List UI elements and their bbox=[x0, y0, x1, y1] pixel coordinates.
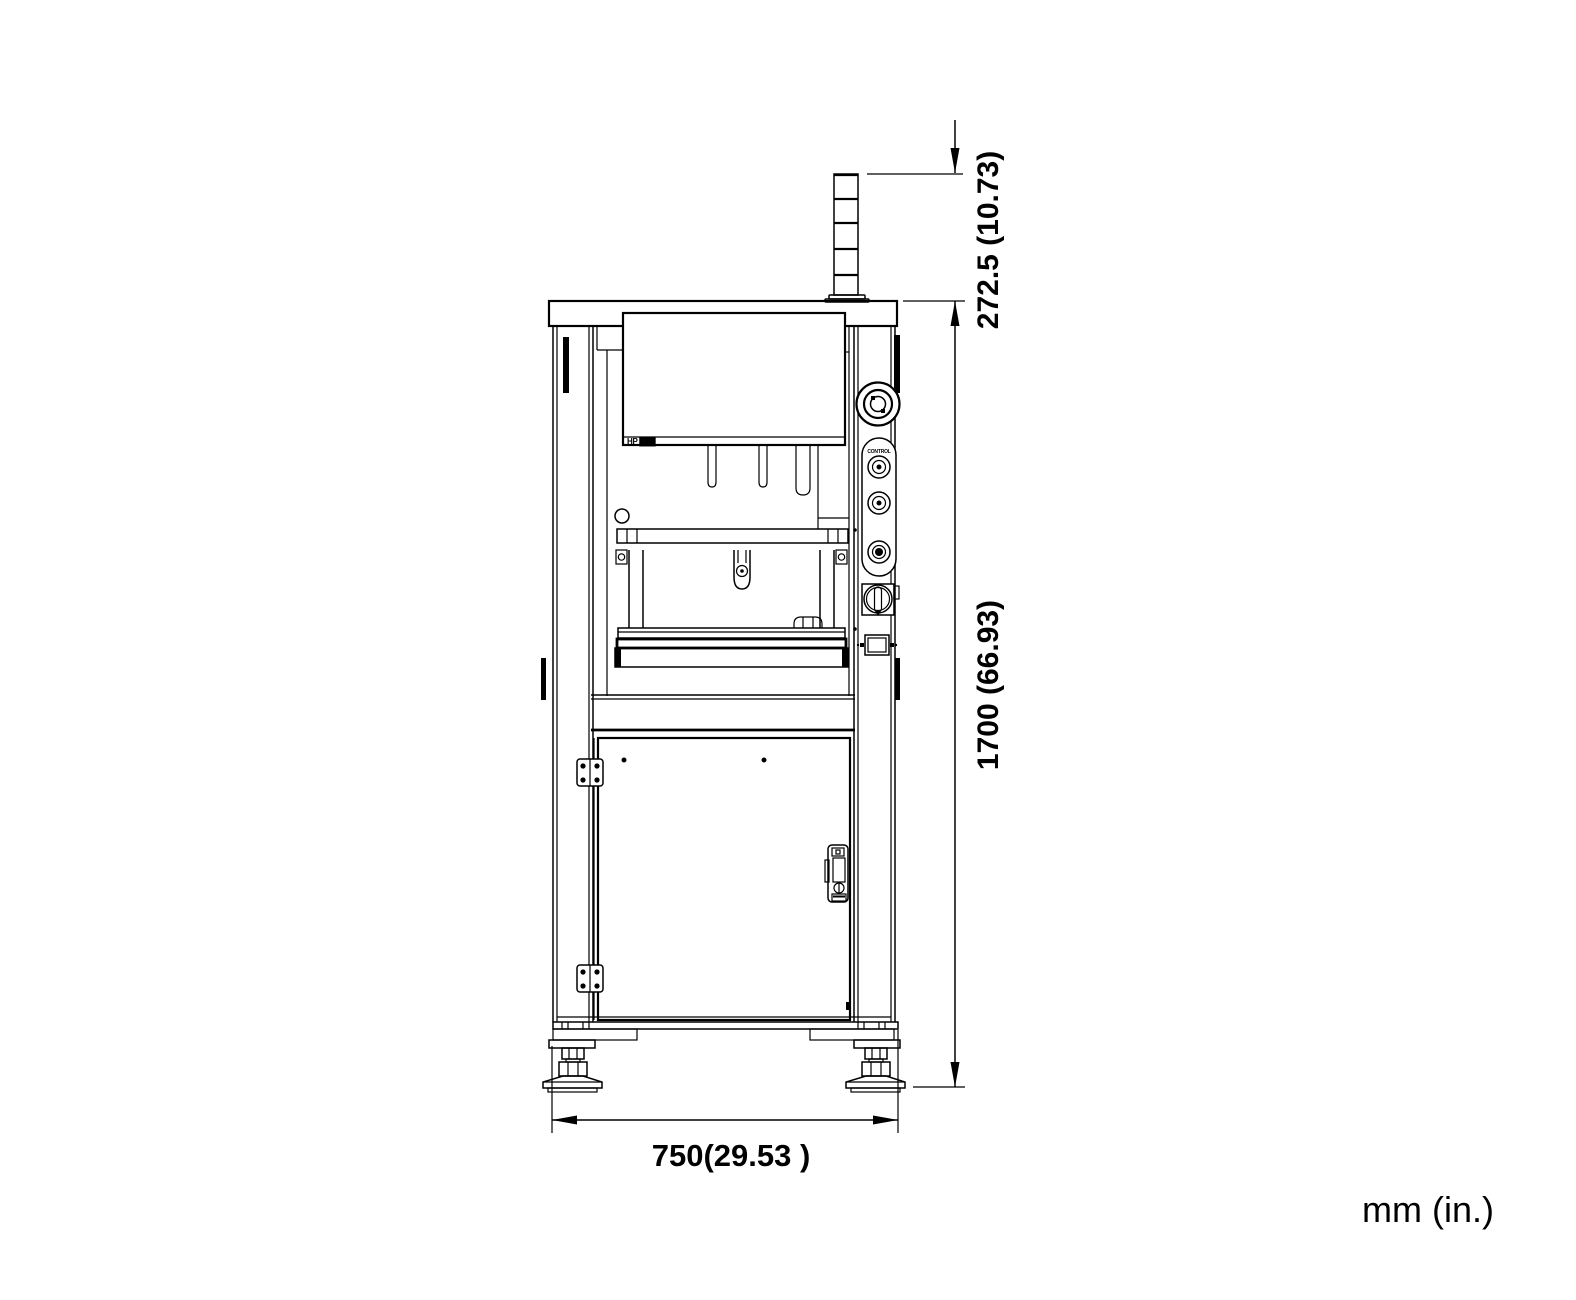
units-note: mm (in.) bbox=[1362, 1189, 1494, 1230]
dimension-overall-height: 1700 (66.93) bbox=[903, 301, 1005, 1087]
head-bolt-hole bbox=[615, 509, 629, 523]
press-beam bbox=[617, 529, 848, 543]
dim-text-overall-width: 750(29.53 ) bbox=[652, 1138, 811, 1173]
dim-arrow-right bbox=[873, 1116, 898, 1125]
control-pod-label: CONTROL bbox=[867, 449, 890, 455]
stack-light bbox=[825, 174, 869, 302]
table-clamp bbox=[794, 617, 822, 628]
leveling-foot-right bbox=[846, 1040, 905, 1092]
main-disconnect-switch bbox=[862, 584, 899, 616]
press-machine-front-view: HP ███ bbox=[0, 0, 1576, 1300]
door-screw-right bbox=[762, 758, 767, 763]
table-platen bbox=[615, 628, 848, 667]
door-latch-mark bbox=[846, 1002, 850, 1010]
control-panel: CONTROL bbox=[853, 383, 899, 656]
dimension-overall-width: 750(29.53 ) bbox=[552, 1030, 898, 1173]
emergency-stop-button bbox=[857, 383, 900, 426]
press-head bbox=[615, 445, 849, 543]
seal-strip-lower-left bbox=[541, 658, 546, 700]
lower-cabinet bbox=[577, 738, 850, 1020]
seal-strip-lower-right bbox=[895, 658, 900, 700]
base-bracket-left bbox=[553, 1029, 637, 1040]
dim-text-beacon-height: 272.5 (10.73) bbox=[972, 151, 1005, 329]
center-tool bbox=[734, 550, 750, 589]
dim-arrow-down bbox=[951, 148, 960, 173]
work-area bbox=[615, 550, 848, 667]
seal-strip-upper-right bbox=[894, 335, 900, 393]
base-bracket-right bbox=[810, 1029, 894, 1040]
panel-model-label: HP ███ bbox=[627, 436, 656, 447]
door-hinge-bottom bbox=[577, 965, 603, 992]
door-handle bbox=[825, 845, 848, 902]
dim-text-overall-height: 1700 (66.93) bbox=[972, 600, 1005, 770]
dim-arrow-left bbox=[552, 1116, 577, 1125]
seal-strip-upper-left bbox=[563, 337, 569, 393]
dim-arrow-down bbox=[951, 1062, 960, 1087]
dimension-beacon-height: 272.5 (10.73) bbox=[867, 120, 1005, 329]
cabinet-door bbox=[598, 738, 850, 1020]
technical-drawing-canvas: HP ███ bbox=[0, 0, 1576, 1300]
door-screw-left bbox=[622, 758, 627, 763]
dim-arrow-up bbox=[951, 301, 960, 326]
door-hinge-top bbox=[577, 759, 603, 786]
control-pod: CONTROL bbox=[862, 438, 896, 576]
front-cover-panel: HP ███ bbox=[623, 313, 845, 447]
